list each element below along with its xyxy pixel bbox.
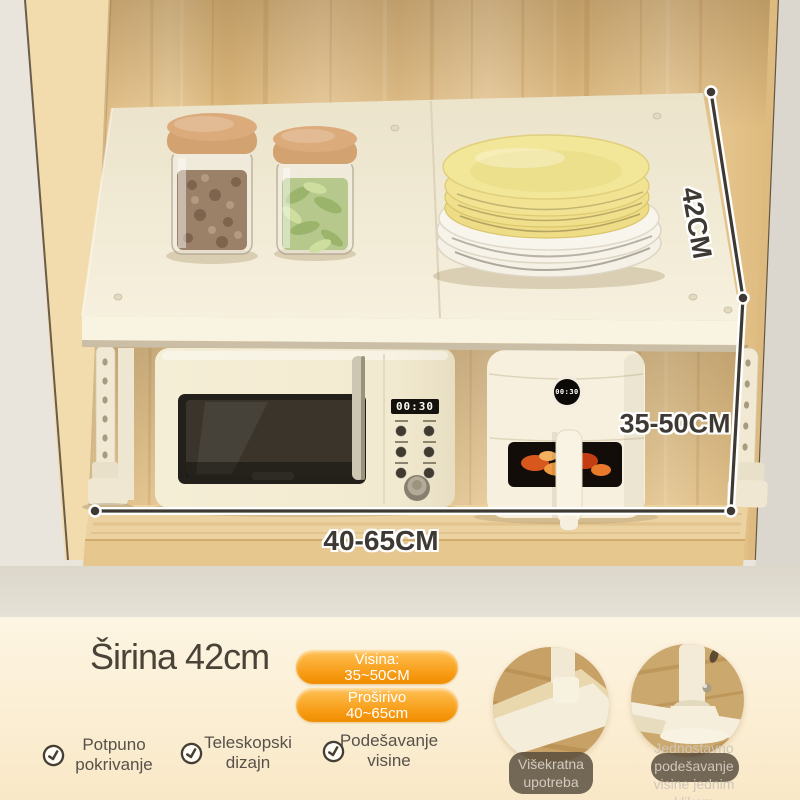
- spec-badges: Visina: 35~50CM Proširivo 40~65cm: [296, 650, 458, 726]
- microwave-timer-display: 00:30: [391, 399, 439, 414]
- feature-label-line: visine: [339, 751, 439, 771]
- detail-caption-line: visine jednim: [627, 775, 761, 793]
- air-fryer-timer-display: 00:30: [551, 376, 583, 408]
- feature-label-line: Potpuno: [66, 735, 162, 755]
- detail-caption-height-adjust: Jednostavno podešavanje visine jednim kl…: [627, 739, 761, 800]
- height-badge: Visina: 35~50CM: [296, 650, 458, 684]
- product-info-panel: Širina 42cm Visina: 35~50CM Proširivo 40…: [0, 617, 800, 800]
- detail-caption-line: upotreba: [518, 773, 584, 791]
- detail-pole: [679, 644, 705, 706]
- feature-label-line: dizajn: [199, 753, 297, 773]
- floor-wall-band: [0, 566, 800, 620]
- spice-jar-anise: [167, 113, 257, 254]
- check-icon: [40, 742, 67, 769]
- detail-photo-reusable: [493, 647, 609, 763]
- plate-stack: [437, 135, 661, 277]
- cabinet-photo: 00:30 00:30 42CM 35-50CM 40-65CM: [0, 0, 800, 620]
- air-fryer-timer-value: 00:30: [554, 379, 580, 405]
- microwave-knob: [404, 475, 430, 501]
- width-range-badge: Proširivo 40~65cm: [296, 688, 458, 722]
- spice-jar-bay-leaves: [273, 126, 357, 256]
- width-range-badge-line2: 40~65cm: [296, 706, 458, 722]
- feature-label-line: Teleskopski: [199, 733, 297, 753]
- detail-caption-line: klikom: [627, 793, 761, 800]
- product-card: 00:30 00:30 42CM 35-50CM 40-65CM Širina …: [0, 0, 800, 800]
- height-badge-line2: 35~50CM: [296, 668, 458, 684]
- width-title: Širina 42cm: [90, 637, 269, 677]
- detail-caption-line: podešavanje: [627, 757, 761, 775]
- detail-caption-line: Višekratna: [518, 755, 584, 773]
- detail-caption-reusable: Višekratna upotreba: [493, 752, 609, 794]
- detail-caption-line: Jednostavno: [627, 739, 761, 757]
- feature-label-line: Podešavanje: [339, 731, 439, 751]
- dimension-label-height: 35-50CM: [619, 409, 730, 440]
- height-badge-line1: Visina:: [296, 652, 458, 668]
- microwave-brand-plate: [252, 472, 294, 480]
- feature-label-line: pokrivanje: [66, 755, 162, 775]
- microwave: [147, 348, 463, 517]
- width-range-badge-line1: Proširivo: [296, 690, 458, 706]
- dimension-label-width: 40-65CM: [323, 525, 438, 557]
